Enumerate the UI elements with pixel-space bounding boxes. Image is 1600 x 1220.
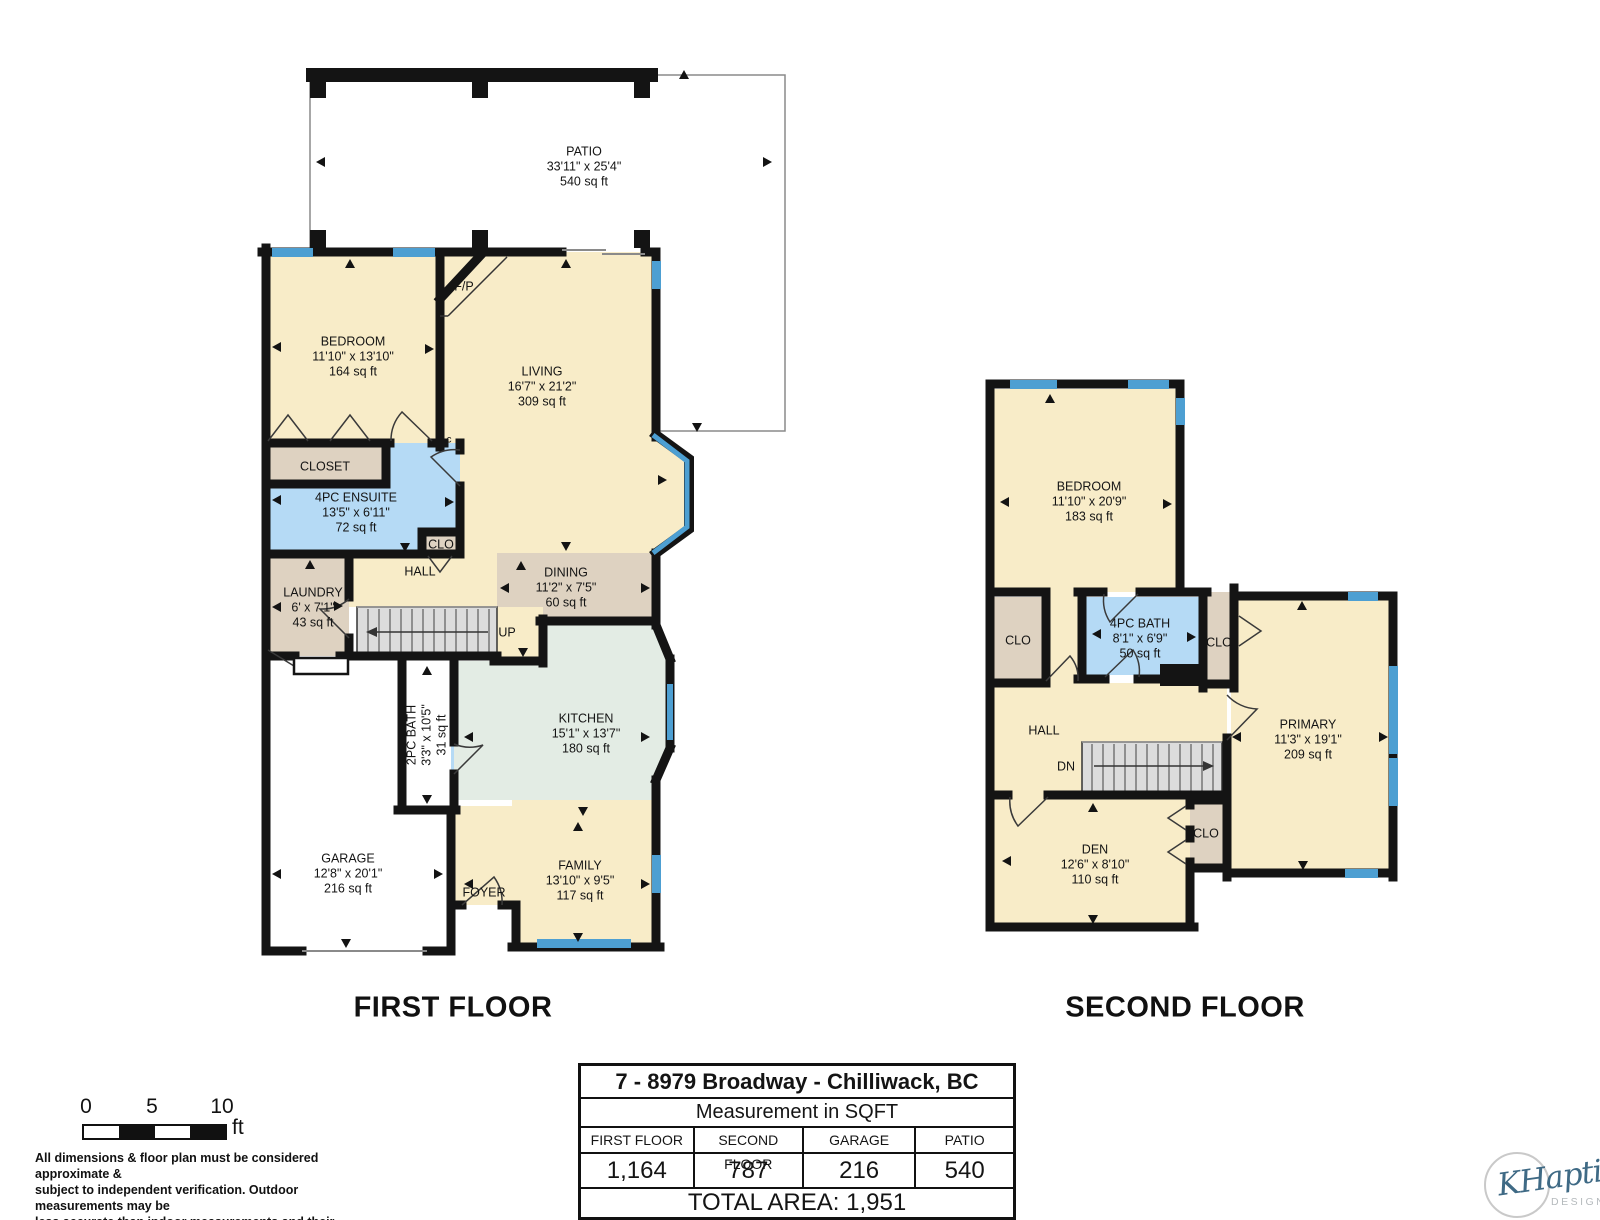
room-dims: 13'5" x 6'11" [315,506,397,521]
closet-label: CLOSET [300,460,350,475]
room-area: 209 sq ft [1274,748,1342,763]
room-label-living: LIVING 16'7" x 21'2" 309 sq ft [508,365,577,410]
room-area: 164 sq ft [312,365,394,380]
room-name: PATIO [547,145,622,160]
room-area: 31 sq ft [435,704,450,766]
room-area: 117 sq ft [546,889,615,904]
room-name: PRIMARY [1274,718,1342,733]
scale-segment [84,1126,119,1138]
room-name: 4PC ENSUITE [315,491,397,506]
first-floor-title: FIRST FLOOR [354,992,553,1025]
table-header-cell: GARAGE [802,1128,914,1152]
room-dims: 12'8" x 20'1" [314,867,383,882]
room-dims: 3'3" x 10'5" [420,704,435,766]
room-area: 309 sq ft [508,395,577,410]
room-label-ensuite: 4PC ENSUITE 13'5" x 6'11" 72 sq ft [315,491,397,536]
room-dims: 11'10" x 13'10" [312,350,394,365]
room-dims: 33'11" x 25'4" [547,160,622,175]
room-name: KITCHEN [552,712,621,727]
disclaimer-text: All dimensions & floor plan must be cons… [35,1150,355,1220]
second-floor-title: SECOND FLOOR [1065,992,1305,1025]
clo-label-ff: CLO [428,538,454,553]
room-name: 4PC BATH [1110,617,1170,632]
floorplan-drawing [0,0,1600,1220]
room-label-patio: PATIO 33'11" x 25'4" 540 sq ft [547,145,622,190]
scale-segment [119,1126,154,1138]
room-label-family: FAMILY 13'10" x 9'5" 117 sq ft [546,859,615,904]
room-name: LAUNDRY [283,586,343,601]
table-value-cell: 1,164 [581,1154,693,1187]
room-label-laundry: LAUNDRY 6' x 7'1" 43 sq ft [283,586,343,631]
up-label: UP [498,626,515,641]
room-label-bedroom-sf: BEDROOM 11'10" x 20'9" 183 sq ft [1052,480,1127,525]
table-address: 7 - 8979 Broadway - Chilliwack, BC [581,1066,1013,1097]
room-name: BEDROOM [1052,480,1127,495]
c-marker: c [447,433,452,448]
room-name: 2PC BATH [405,704,420,766]
scale-tick-10: 10 [210,1095,233,1119]
room-name: LIVING [508,365,577,380]
room-label-dining: DINING 11'2" x 7'5" 60 sq ft [536,566,597,611]
room-area: 540 sq ft [547,175,622,190]
fireplace-label: F/P [454,280,473,295]
room-label-bedroom-ff: BEDROOM 11'10" x 13'10" 164 sq ft [312,335,394,380]
table-total: TOTAL AREA: 1,951 [581,1187,1013,1217]
summary-table: 7 - 8979 Broadway - Chilliwack, BC Measu… [578,1063,1016,1220]
room-area: 183 sq ft [1052,510,1127,525]
table-header-cell: SECOND FLOOR [693,1128,802,1152]
room-name: DINING [536,566,597,581]
room-area: 180 sq ft [552,742,621,757]
room-dims: 6' x 7'1" [283,601,343,616]
room-label-primary: PRIMARY 11'3" x 19'1" 209 sq ft [1274,718,1342,763]
clo-left-label: CLO [1005,634,1031,649]
room-label-4pc-bath: 4PC BATH 8'1" x 6'9" 50 sq ft [1110,617,1170,662]
table-value-row: 1,164 787 216 540 [581,1152,1013,1187]
room-area: 216 sq ft [314,882,383,897]
room-area: 60 sq ft [536,596,597,611]
scale-segment [190,1126,225,1138]
room-dims: 15'1" x 13'7" [552,727,621,742]
dn-label: DN [1057,760,1075,775]
foyer-label: FOYER [462,886,505,901]
room-label-den: DEN 12'6" x 8'10" 110 sq ft [1061,843,1130,888]
scale-tick-0: 0 [80,1095,92,1119]
scale-unit: ft [232,1116,244,1140]
clo-bottom-label: CLO [1193,827,1219,842]
room-area: 72 sq ft [315,521,397,536]
room-dims: 8'1" x 6'9" [1110,632,1170,647]
scale-tick-5: 5 [146,1095,158,1119]
room-name: BEDROOM [312,335,394,350]
clo-right-label: CLO [1206,636,1232,651]
room-dims: 16'7" x 21'2" [508,380,577,395]
floor-plan-page: PATIO 33'11" x 25'4" 540 sq ft BEDROOM 1… [0,0,1600,1220]
table-header-cell: PATIO [914,1128,1013,1152]
hall-label-ff: HALL [404,565,435,580]
room-area: 43 sq ft [283,616,343,631]
room-dims: 11'2" x 7'5" [536,581,597,596]
room-dims: 11'10" x 20'9" [1052,495,1127,510]
room-name: DEN [1061,843,1130,858]
table-subtitle: Measurement in SQFT [581,1097,1013,1126]
table-header-row: FIRST FLOOR SECOND FLOOR GARAGE PATIO [581,1126,1013,1152]
table-value-cell: 216 [802,1154,914,1187]
table-value-cell: 787 [693,1154,802,1187]
scale-segment [155,1126,190,1138]
hall-label-sf: HALL [1028,724,1059,739]
room-label-garage: GARAGE 12'8" x 20'1" 216 sq ft [314,852,383,897]
room-area: 110 sq ft [1061,873,1130,888]
room-label-kitchen: KITCHEN 15'1" x 13'7" 180 sq ft [552,712,621,757]
scale-bar [82,1124,227,1140]
room-area: 50 sq ft [1110,647,1170,662]
logo-sub: DESIGN [1551,1196,1600,1208]
room-name: GARAGE [314,852,383,867]
table-header-cell: FIRST FLOOR [581,1128,693,1152]
room-label-2pc-bath: 2PC BATH 3'3" x 10'5" 31 sq ft [405,704,450,766]
room-dims: 12'6" x 8'10" [1061,858,1130,873]
room-dims: 13'10" x 9'5" [546,874,615,889]
room-dims: 11'3" x 19'1" [1274,733,1342,748]
table-value-cell: 540 [914,1154,1013,1187]
room-name: FAMILY [546,859,615,874]
